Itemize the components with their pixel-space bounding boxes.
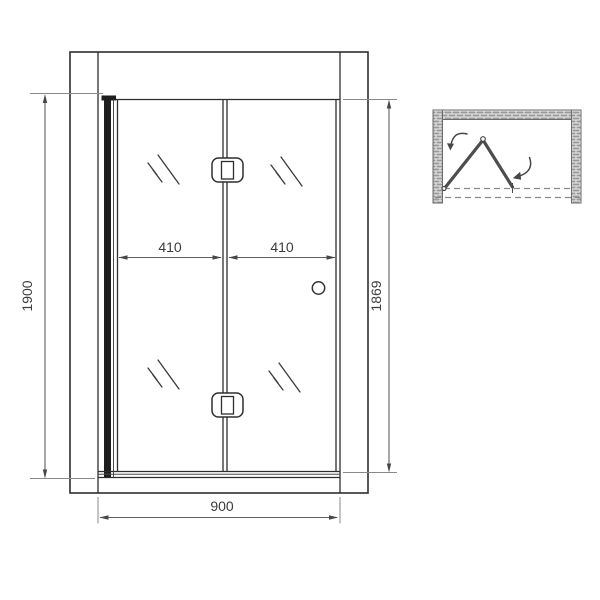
- pivot-point: [442, 187, 446, 191]
- drawing-sheet: 1900 1869 410 410 900: [0, 0, 600, 600]
- dimension-label-height-overall: 1900: [19, 280, 35, 311]
- wall-hatch-right: [572, 110, 582, 203]
- left-wall-profile: [104, 96, 111, 478]
- dimension-height-door: 1869: [343, 100, 397, 473]
- glass-mark-lower-right: [269, 363, 300, 392]
- glass-mark-upper-right: [271, 157, 302, 186]
- dimension-label-width-overall: 900: [210, 498, 234, 514]
- wall-hatch-top: [433, 110, 581, 120]
- dimension-height-overall: 1900: [19, 94, 103, 479]
- swing-arrow-left: [447, 133, 467, 150]
- glass-mark-lower-left: [148, 360, 179, 389]
- dimension-panel-left: 410: [119, 239, 222, 260]
- dimension-panel-right: 410: [229, 239, 336, 260]
- door-handle-knob: [312, 282, 324, 294]
- fold-hinge-point: [481, 137, 486, 142]
- front-elevation-view: [70, 52, 368, 493]
- dimension-label-panel-right: 410: [270, 239, 294, 255]
- outer-frame: [70, 52, 368, 493]
- glass-mark-upper-left: [148, 155, 179, 184]
- wall-hatch-left: [433, 110, 443, 203]
- plan-top-view: [433, 110, 581, 203]
- swing-arrow-right: [513, 158, 531, 180]
- folded-panel-right: [483, 140, 513, 187]
- dimension-label-height-door: 1869: [368, 280, 384, 311]
- hinge-bottom: [212, 393, 243, 417]
- dimension-label-panel-left: 410: [158, 239, 182, 255]
- dimension-width-overall: 900: [98, 497, 340, 524]
- technical-drawing-canvas: 1900 1869 410 410 900: [0, 0, 600, 600]
- hinge-top: [212, 158, 243, 182]
